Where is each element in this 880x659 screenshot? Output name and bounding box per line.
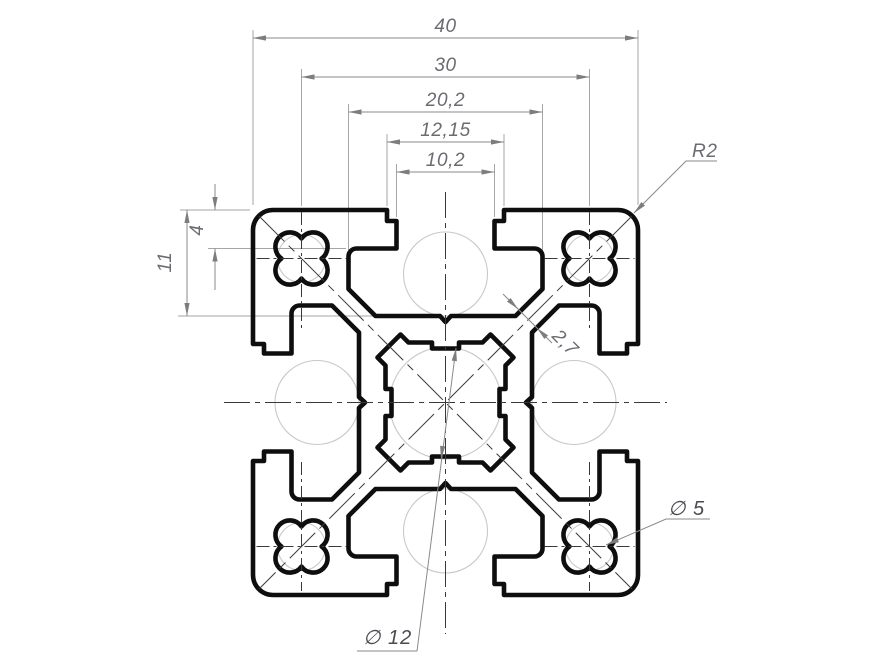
arrow-12-15-right bbox=[491, 139, 504, 144]
leader-r2 bbox=[634, 161, 717, 213]
arrow-40-left bbox=[253, 35, 266, 40]
dim-text-corner-radius: R2 bbox=[692, 141, 718, 162]
arrow-4-bottom bbox=[212, 249, 217, 262]
dim-text-corner-hole-diameter: ∅ 5 bbox=[668, 498, 705, 520]
dim-text-center-bore-diameter: ∅ 12 bbox=[363, 627, 412, 649]
arrow-30-right bbox=[577, 74, 590, 79]
arrow-30-left bbox=[302, 74, 315, 79]
leader-dia5 bbox=[606, 519, 710, 545]
arrow-12-15-left bbox=[387, 139, 400, 144]
arrow-11-top bbox=[184, 210, 189, 223]
arrow-40-right bbox=[625, 35, 638, 40]
drawing-canvas: 40 30 20,2 12,15 10,2 4 11 R2 2,7 ∅ 5 ∅ … bbox=[0, 0, 880, 659]
dim-text-slot-opening: 10,2 bbox=[426, 150, 465, 171]
profile-drawing: 40 30 20,2 12,15 10,2 4 11 R2 2,7 ∅ 5 ∅ … bbox=[0, 0, 880, 659]
dim-text-outer-opening: 12,15 bbox=[420, 120, 471, 141]
dim-text-hole-spacing: 30 bbox=[434, 55, 456, 76]
dim-text-overall-width: 40 bbox=[434, 16, 456, 37]
arrow-10-2-left bbox=[397, 169, 410, 174]
dim-text-lip-depth: 4 bbox=[187, 224, 208, 235]
dim-text-slot-depth: 11 bbox=[155, 252, 176, 273]
arrow-20-2-left bbox=[349, 109, 362, 114]
arrow-11-bottom bbox=[184, 303, 189, 316]
dim-text-wall-thickness: 2,7 bbox=[547, 325, 583, 361]
dim-text-cavity-width: 20,2 bbox=[425, 90, 465, 111]
arrow-10-2-right bbox=[482, 169, 495, 174]
arrow-4-top bbox=[212, 197, 217, 210]
arrow-20-2-right bbox=[530, 109, 543, 114]
